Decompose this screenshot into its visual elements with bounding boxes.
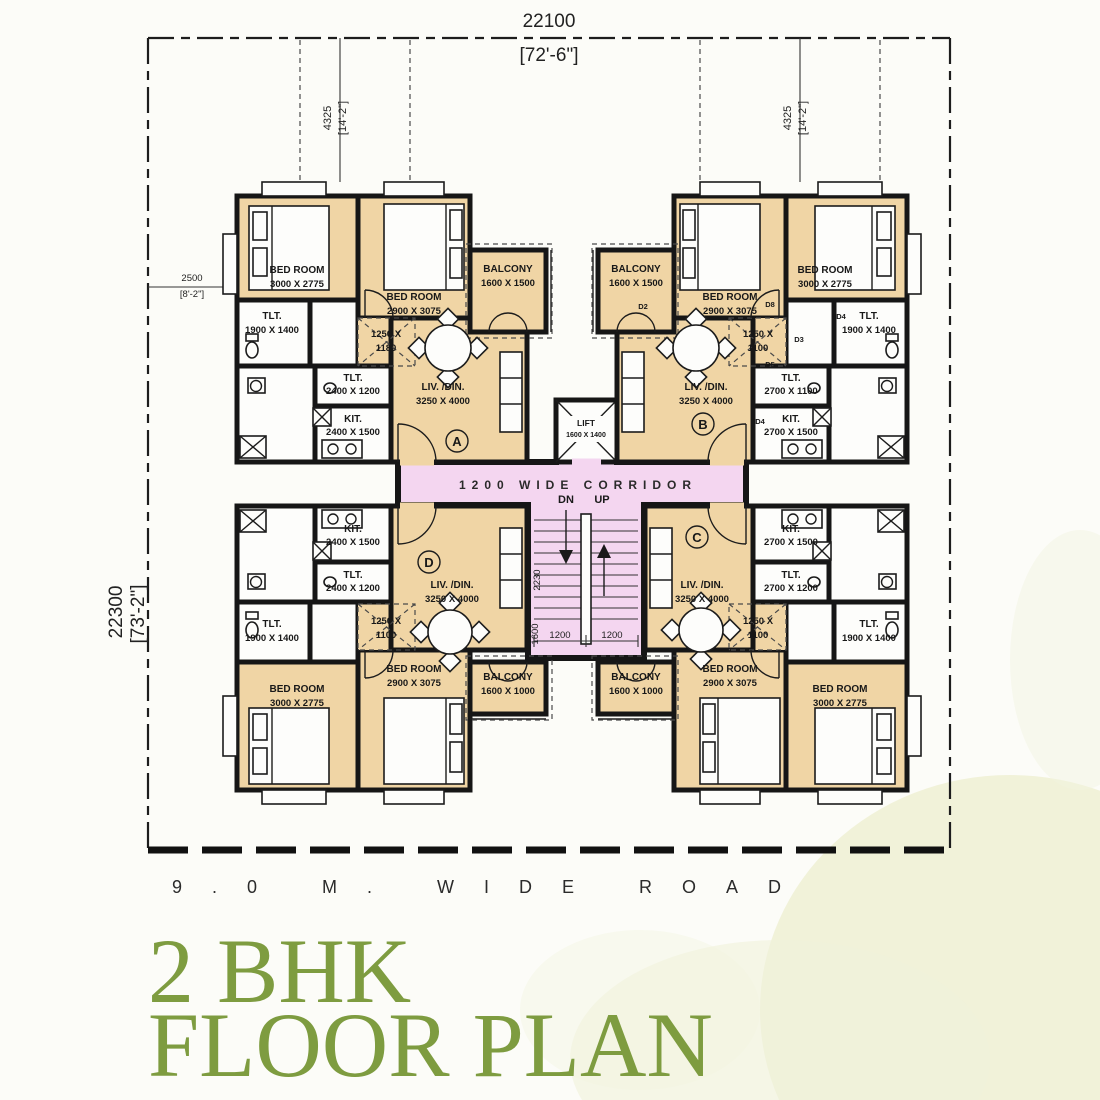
room-size: 1600 X 1000 <box>609 686 663 697</box>
shaft-icon <box>240 436 266 458</box>
room-label: TLT. <box>781 570 800 581</box>
bed-icon <box>700 698 780 784</box>
room-size: 2700 X 1500 <box>764 427 818 438</box>
shaft-icon <box>813 408 831 426</box>
passage-size: 1250 X <box>371 329 402 340</box>
room-size: 3250 X 4000 <box>425 594 479 605</box>
washbasin-icon <box>879 574 896 589</box>
room-size: 2400 X 1200 <box>326 583 380 594</box>
room-label: BED ROOM <box>270 684 325 695</box>
unit-d-hall <box>310 602 358 662</box>
floor-plan-svg: 22100 [72'-6"] 22300 [73'-2"] 4325 [14'-… <box>0 0 1100 1100</box>
flight-width-dim: 1200 <box>601 630 622 641</box>
passage-size: 1100 <box>376 630 397 641</box>
bed-icon <box>249 206 329 290</box>
room-size: 1900 X 1400 <box>842 633 896 644</box>
room-label: KIT. <box>782 524 800 535</box>
sofa-icon <box>500 528 522 608</box>
room-size: 3000 X 2775 <box>270 279 325 290</box>
room-size: 2900 X 3075 <box>703 306 758 317</box>
room-label: BED ROOM <box>387 664 442 675</box>
room-size: 2700 X 1100 <box>764 386 817 397</box>
stairs-up-label: UP <box>594 494 609 506</box>
room-size: 3000 X 2775 <box>270 698 325 709</box>
door-tag: D4 <box>836 312 846 321</box>
door-tag: D4 <box>755 417 765 426</box>
passage-size: 1250 X <box>743 329 774 340</box>
door-tag: D2 <box>638 302 648 311</box>
corridor-label: 1200 WIDE CORRIDOR <box>459 478 697 492</box>
sofa-icon <box>650 528 672 608</box>
wing-left-ft: [14'-2"] <box>337 101 349 135</box>
bed-icon <box>384 204 464 290</box>
wc-icon <box>246 334 258 358</box>
room-label: BED ROOM <box>703 292 758 303</box>
room-label: TLT. <box>859 311 878 322</box>
room-label: KIT. <box>344 524 362 535</box>
door-tag: D5 <box>765 360 775 369</box>
bed-icon <box>680 204 760 290</box>
room-label: LIV. /DIN. <box>685 382 728 393</box>
room-size: 1900 X 1400 <box>245 325 299 336</box>
room-label: TLT. <box>343 373 362 384</box>
passage-size: 1250 X <box>743 616 774 627</box>
unit-b-hall <box>786 300 834 366</box>
room-label: LIV. /DIN. <box>681 580 724 591</box>
side-setback-ft: [8'-2"] <box>180 289 204 300</box>
room-label: BED ROOM <box>813 684 868 695</box>
room-size: 1900 X 1400 <box>245 633 299 644</box>
room-size: 2700 X 1200 <box>764 583 818 594</box>
overall-width-ft: [72'-6"] <box>520 45 579 66</box>
unit-a-balcony <box>470 250 546 332</box>
lift-size-label: 1600 X 1400 <box>566 432 606 439</box>
room-size: 2400 X 1200 <box>326 386 380 397</box>
room-label: TLT. <box>343 570 362 581</box>
floor-plan-page: 22100 [72'-6"] 22300 [73'-2"] 4325 [14'-… <box>0 0 1100 1100</box>
wing-right-mm: 4325 <box>782 106 794 130</box>
room-size: 2900 X 3075 <box>387 306 442 317</box>
title-line2: FLOOR PLAN <box>148 994 713 1096</box>
overall-width-mm: 22100 <box>523 11 576 32</box>
room-size: 3000 X 2775 <box>813 698 868 709</box>
room-label: KIT. <box>344 414 362 425</box>
unit-letter: D <box>424 555 433 570</box>
stair-stringer-icon <box>581 514 591 644</box>
room-label: BED ROOM <box>798 265 853 276</box>
wing-left-mm: 4325 <box>322 106 334 130</box>
overall-depth-ft: [73'-2"] <box>128 585 149 644</box>
room-size: 2900 X 3075 <box>703 678 758 689</box>
unit-letter: C <box>692 530 702 545</box>
bed-icon <box>815 206 895 290</box>
unit-b: BED ROOM 2900 X 3075 BED ROOM 3000 X 277… <box>592 196 907 462</box>
door-tag: D8 <box>765 300 775 309</box>
room-size: 3250 X 4000 <box>675 594 729 605</box>
room-size: 2900 X 3075 <box>387 678 442 689</box>
unit-letter: B <box>698 417 707 432</box>
room-label: TLT. <box>262 311 281 322</box>
room-label: BED ROOM <box>703 664 758 675</box>
room-size: 1600 X 1500 <box>609 278 663 289</box>
washbasin-icon <box>248 378 265 393</box>
passage-size: 1180 <box>376 343 397 354</box>
stairs-dn-label: DN <box>558 494 574 506</box>
room-label: TLT. <box>781 373 800 384</box>
stair-depth-dim: 2230 <box>532 569 543 590</box>
room-label: BALCONY <box>483 672 533 683</box>
stove-icon <box>322 440 362 458</box>
shaft-icon <box>313 408 331 426</box>
sofa-icon <box>622 352 644 432</box>
bed-icon <box>384 698 464 784</box>
room-size: 3250 X 4000 <box>679 396 733 407</box>
room-label: BALCONY <box>611 264 661 275</box>
door-tag: D3 <box>794 335 804 344</box>
flight-width-dim: 1200 <box>549 630 570 641</box>
bed-icon <box>249 708 329 784</box>
wing-right-ft: [14'-2"] <box>797 101 809 135</box>
unit-a-hall <box>310 300 358 366</box>
unit-d: KIT. 2400 X 1500 TLT. 2400 X 1200 TLT. 1… <box>237 506 552 790</box>
room-label: BED ROOM <box>270 265 325 276</box>
room-label: BALCONY <box>611 672 661 683</box>
unit-b-balcony <box>598 250 674 332</box>
room-label: LIV. /DIN. <box>431 580 474 591</box>
room-size: 1600 X 1500 <box>481 278 535 289</box>
unit-c-hall <box>786 602 834 662</box>
room-size: 1900 X 1400 <box>842 325 896 336</box>
lift-label: LIFT <box>577 418 596 428</box>
road-label: 9.0 M. WIDE ROAD <box>172 877 811 897</box>
room-size: 2700 X 1500 <box>764 537 818 548</box>
shaft-icon <box>878 510 904 532</box>
passage-size: 1100 <box>748 343 769 354</box>
shaft-icon <box>240 510 266 532</box>
lift-shaft: LIFT 1600 X 1400 <box>556 400 617 462</box>
room-label: BED ROOM <box>387 292 442 303</box>
overall-depth-mm: 22300 <box>106 586 127 639</box>
room-size: 2400 X 1500 <box>326 537 380 548</box>
room-label: TLT. <box>262 619 281 630</box>
unit-letter: A <box>452 434 462 449</box>
room-label: KIT. <box>782 414 800 425</box>
room-label: LIV. /DIN. <box>422 382 465 393</box>
room-size: 3000 X 2775 <box>798 279 853 290</box>
sofa-icon <box>500 352 522 432</box>
wc-icon <box>886 334 898 358</box>
washbasin-icon <box>879 378 896 393</box>
unit-a: BED ROOM 3000 X 2775 BED ROOM 2900 X 307… <box>237 196 552 462</box>
side-setback-mm: 2500 <box>181 273 202 284</box>
stove-icon <box>782 440 822 458</box>
washbasin-icon <box>248 574 265 589</box>
room-label: BALCONY <box>483 264 533 275</box>
room-size: 3250 X 4000 <box>416 396 470 407</box>
bed-icon <box>815 708 895 784</box>
passage-size: 1100 <box>748 630 769 641</box>
room-size: 1600 X 1000 <box>481 686 535 697</box>
room-label: TLT. <box>859 619 878 630</box>
shaft-icon <box>878 436 904 458</box>
passage-size: 1250 X <box>371 616 402 627</box>
room-size: 2400 X 1500 <box>326 427 380 438</box>
